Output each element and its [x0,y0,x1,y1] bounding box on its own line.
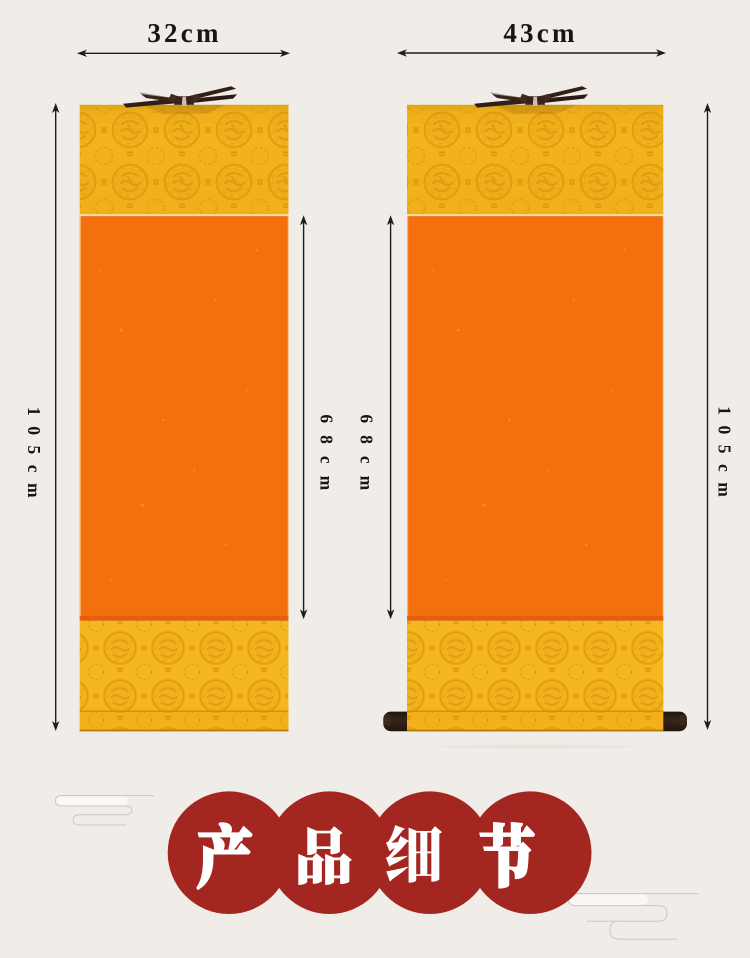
svg-text:105cm: 105cm [714,406,734,507]
svg-text:68cm: 68cm [356,414,376,502]
svg-text:105cm: 105cm [24,407,44,508]
svg-text:68cm: 68cm [316,414,336,502]
svg-text:32cm: 32cm [147,18,221,48]
svg-text:43cm: 43cm [503,18,577,48]
